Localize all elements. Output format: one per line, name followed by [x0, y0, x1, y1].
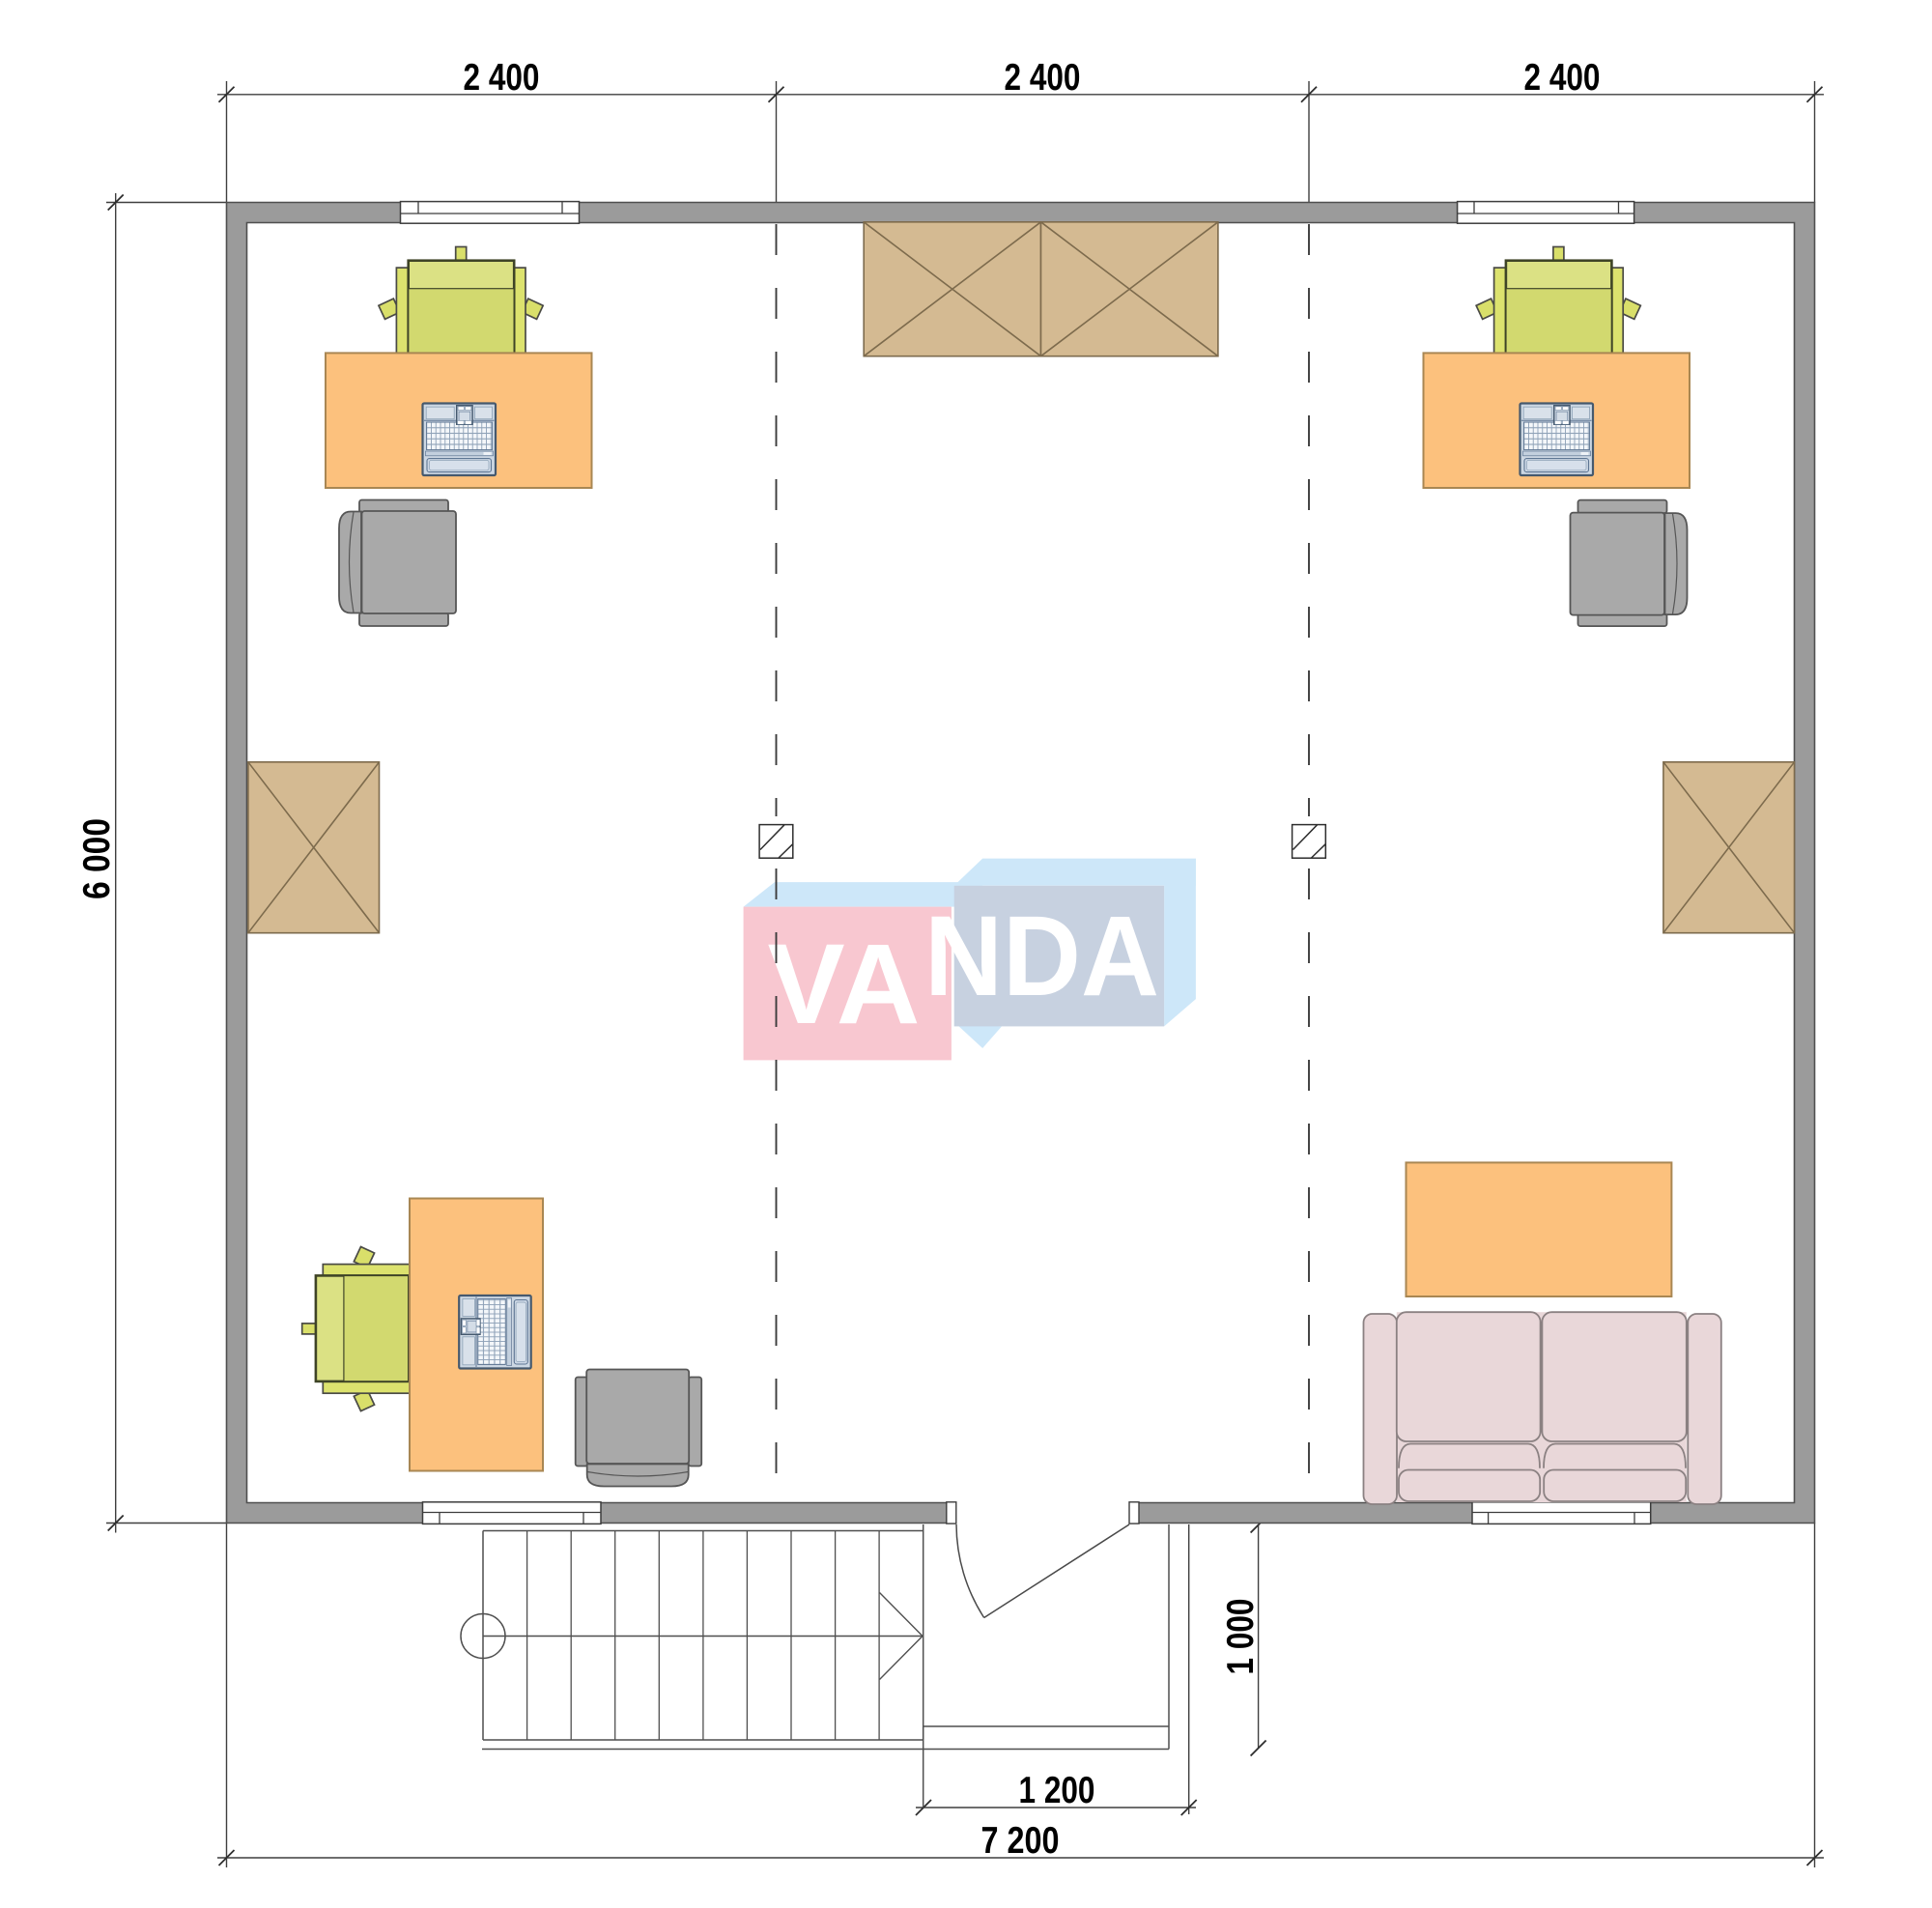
- svg-text:NDA: NDA: [924, 893, 1159, 1020]
- svg-text:2 400: 2 400: [464, 57, 540, 99]
- svg-text:6 000: 6 000: [76, 818, 118, 899]
- svg-text:VA: VA: [768, 921, 921, 1048]
- svg-text:1 000: 1 000: [1220, 1599, 1262, 1675]
- svg-text:7 200: 7 200: [981, 1820, 1060, 1862]
- svg-text:2 400: 2 400: [1005, 57, 1081, 99]
- svg-text:2 400: 2 400: [1524, 57, 1601, 99]
- svg-text:1 200: 1 200: [1019, 1770, 1095, 1811]
